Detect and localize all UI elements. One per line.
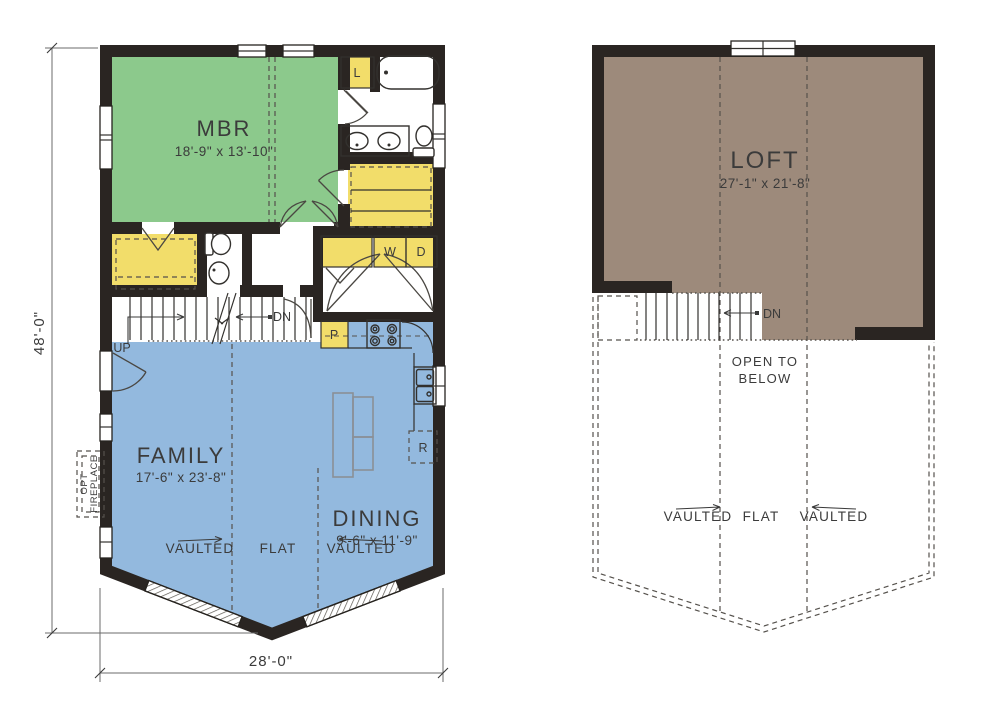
mbr-dims: 18'-9" x 13'-10" (175, 144, 274, 159)
vaulted-right-label-loft: VAULTED (800, 509, 869, 524)
toilet-master (413, 126, 434, 157)
refrigerator-label: R (418, 441, 427, 455)
open-to-below-label-2: BELOW (739, 371, 792, 386)
width-dimension: 28'-0" (249, 653, 293, 670)
flat-label-first: FLAT (260, 541, 297, 556)
family-dims: 17'-6" x 23'-8" (136, 470, 227, 485)
floor-plan-sheet: UP DN (0, 0, 999, 722)
up-arrow (128, 314, 184, 344)
ceiling-labels-loft: VAULTED FLAT VAULTED (664, 505, 869, 525)
walk-in-closet-right (348, 164, 433, 229)
window-right-kitchen (433, 366, 445, 406)
window-left-2 (100, 414, 112, 441)
second-floor-plan: DN LOFT 27'-1" x 21'-8" OPEN TO BELOW VA… (592, 41, 935, 632)
vanity-double-sink (341, 126, 409, 156)
dn-arrow-loft (724, 310, 759, 316)
bathtub (377, 56, 439, 89)
loft-room (604, 57, 923, 340)
open-to-below-label-1: OPEN TO (732, 354, 798, 369)
sink-half-bath (209, 262, 229, 284)
washer-label: W (384, 245, 396, 259)
window-top-1 (238, 45, 266, 57)
hall-closet-bifold (326, 268, 354, 283)
linen-label: L (354, 66, 361, 80)
loft-title: LOFT (730, 147, 799, 174)
depth-dimension: 48'-0" (31, 311, 48, 355)
window-loft-top (731, 41, 795, 56)
window-left-3 (100, 527, 112, 558)
walk-in-closet-left (112, 234, 198, 292)
pantry-label: P (330, 328, 338, 342)
window-left-1 (100, 106, 112, 169)
vaulted-left-label-loft: VAULTED (664, 509, 733, 524)
dn-arrow-first (236, 314, 272, 320)
window-top-2 (283, 45, 314, 57)
hall-closet (321, 236, 372, 267)
toilet-half-bath (205, 233, 231, 255)
window-right-1 (433, 104, 445, 168)
linen-door (346, 91, 368, 113)
dining-title: DINING (333, 506, 422, 531)
opt-fireplace-label-2: FIREPLACE (89, 455, 100, 512)
dn-label-loft: DN (763, 307, 781, 321)
family-title: FAMILY (137, 443, 226, 468)
stair-landing (598, 296, 637, 340)
mbr-title: MBR (197, 116, 252, 141)
loft-dims: 27'-1" x 21'-8" (720, 176, 811, 191)
open-to-below-outline (593, 297, 934, 632)
flat-label-loft: FLAT (743, 509, 780, 524)
first-floor-plan: UP DN (31, 43, 448, 682)
vaulted-left-label-first: VAULTED (166, 541, 235, 556)
bath-door (344, 90, 367, 124)
dn-label-first: DN (273, 310, 291, 324)
up-label: UP (113, 341, 130, 355)
vaulted-right-label-first: VAULTED (327, 541, 396, 556)
optional-fireplace: OPT FIREPLACE (77, 451, 104, 517)
dryer-label: D (416, 245, 425, 259)
floor-plan-drawing: UP DN (0, 0, 999, 722)
